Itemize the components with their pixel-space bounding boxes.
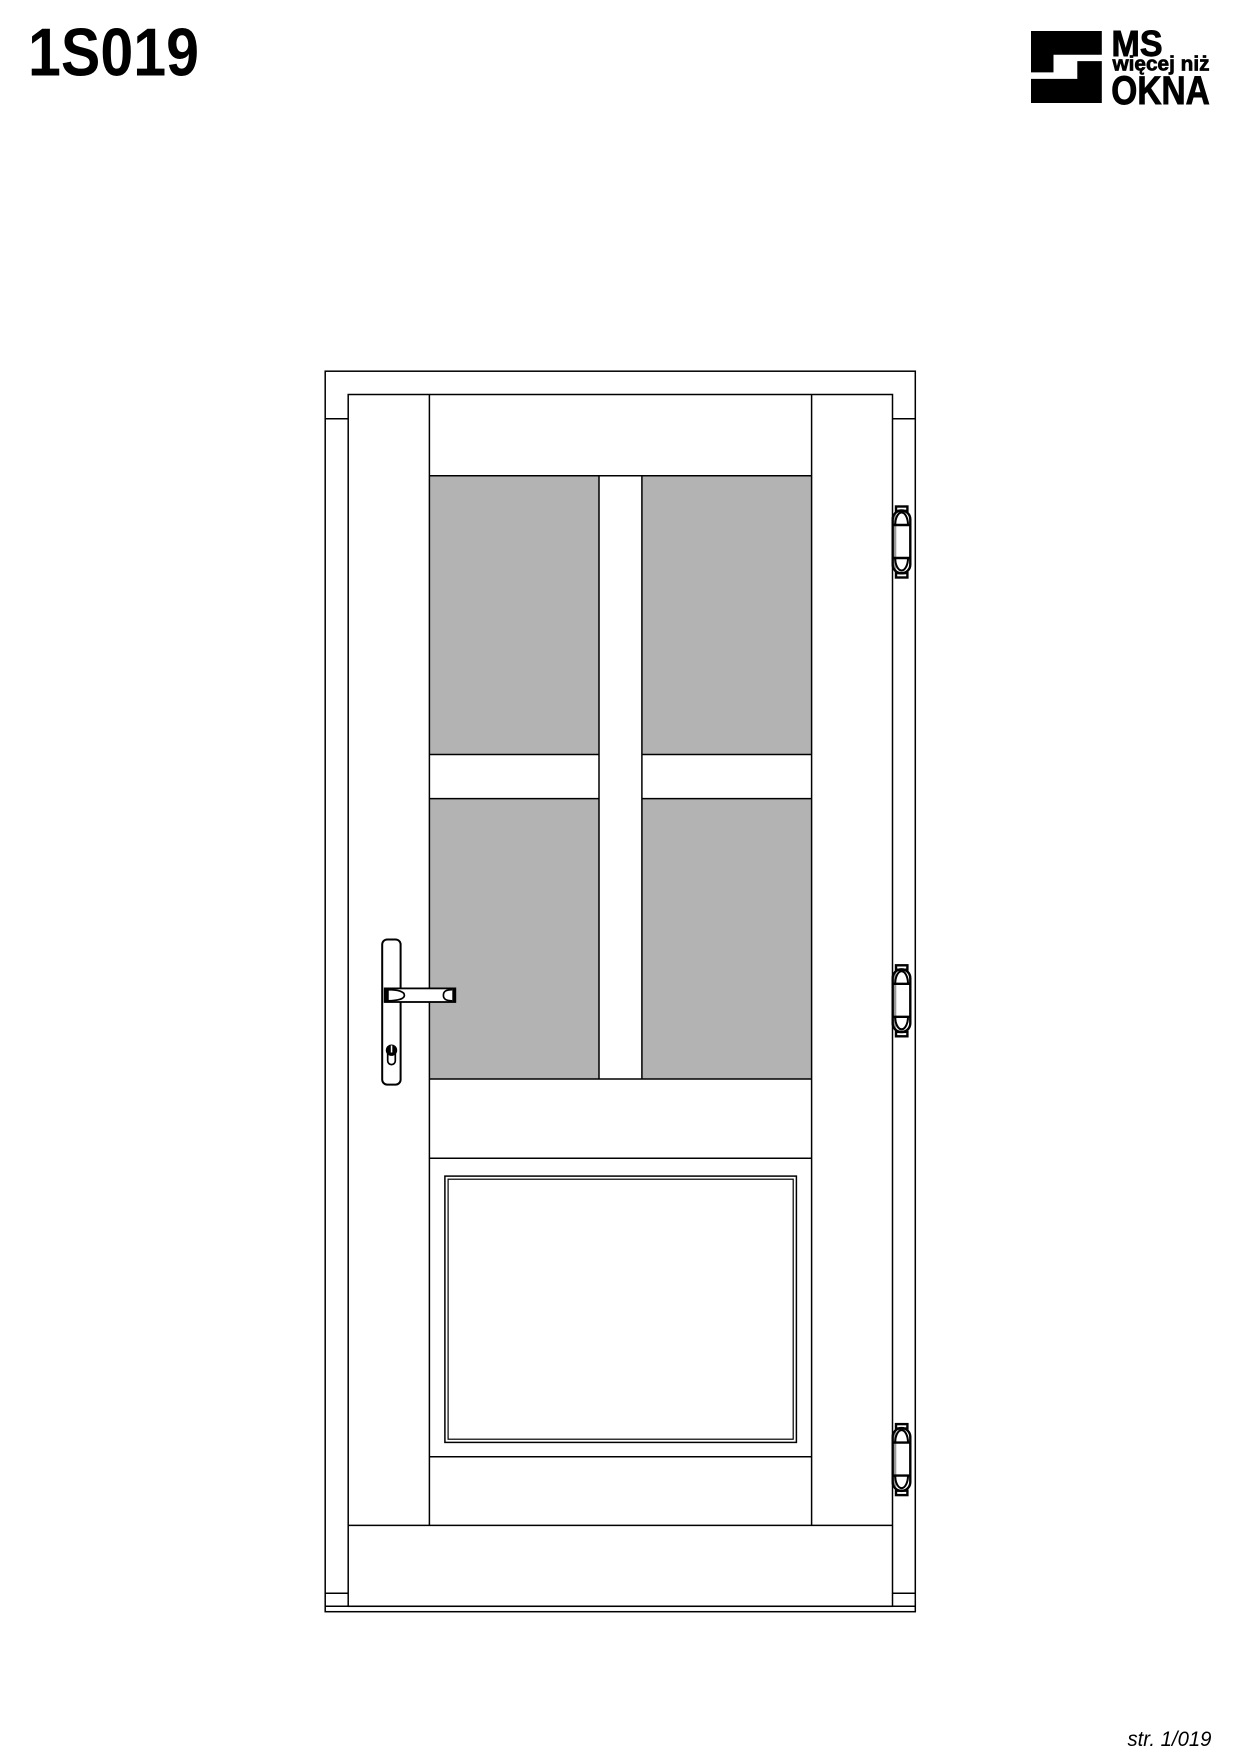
svg-text:str. 1/019: str. 1/019	[1128, 1727, 1212, 1751]
svg-text:OKNA: OKNA	[1111, 69, 1210, 113]
svg-text:1S019: 1S019	[28, 16, 199, 91]
